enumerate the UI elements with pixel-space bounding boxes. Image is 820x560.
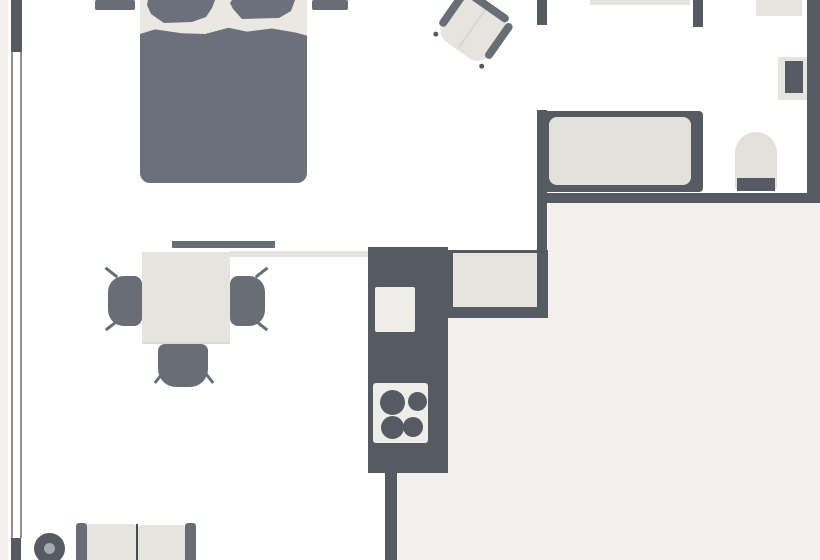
hall-floor-lower: [397, 473, 448, 560]
bathtub-basin: [549, 117, 691, 185]
hall-floor-upper: [548, 203, 820, 560]
exterior-strip: [0, 0, 8, 560]
sideboard-shelf: [172, 241, 275, 249]
bathroom-left-wall-stub: [537, 0, 547, 25]
stove-burner-bottom-right: [403, 417, 423, 437]
stove-burner-bottom-left: [381, 416, 404, 439]
kitchen-sink: [375, 287, 415, 332]
dining-chair-right-leg-top: [255, 267, 268, 278]
dining-chair-left: [108, 276, 142, 326]
bathroom-partition-wall: [693, 0, 703, 27]
window-outer-line: [11, 52, 13, 538]
floor-plan: [0, 0, 820, 560]
sofa-cushion-right: [138, 525, 185, 560]
nightstand-left: [95, 0, 135, 10]
plant-center: [44, 543, 55, 554]
counter-strip: [230, 251, 368, 257]
left-wall-lower: [11, 538, 21, 560]
radiator: [785, 61, 803, 93]
armchair-foot-left: [432, 30, 439, 37]
armchair: [432, 0, 513, 69]
sofa-armrest-right: [185, 523, 196, 560]
dining-chair-right: [230, 276, 265, 326]
armchair-foot-right: [478, 62, 485, 69]
bathroom-bottom-wall: [537, 193, 820, 203]
sofa-armrest-left: [76, 523, 87, 560]
stove-burner-top-left: [380, 390, 405, 415]
window-inner-line: [20, 52, 22, 538]
vanity-counter: [590, 0, 690, 5]
hall-floor-mid: [448, 318, 548, 560]
dining-table-edge: [142, 342, 230, 345]
bathroom-right-wall: [807, 0, 820, 203]
nightstand-right: [312, 0, 348, 10]
dining-chair-left-leg-top: [105, 267, 118, 278]
dining-chair-bottom: [158, 344, 208, 387]
bed-blanket: [140, 27, 307, 183]
left-wall-upper: [11, 0, 22, 52]
dining-table: [142, 252, 230, 342]
stove-burner-top-right: [408, 392, 427, 411]
toilet-tank: [737, 178, 775, 191]
kitchen-divider-wall: [385, 473, 397, 560]
wall-shelf: [756, 0, 802, 16]
sofa-cushion-left: [87, 524, 136, 560]
kitchen-counter: [453, 253, 537, 307]
